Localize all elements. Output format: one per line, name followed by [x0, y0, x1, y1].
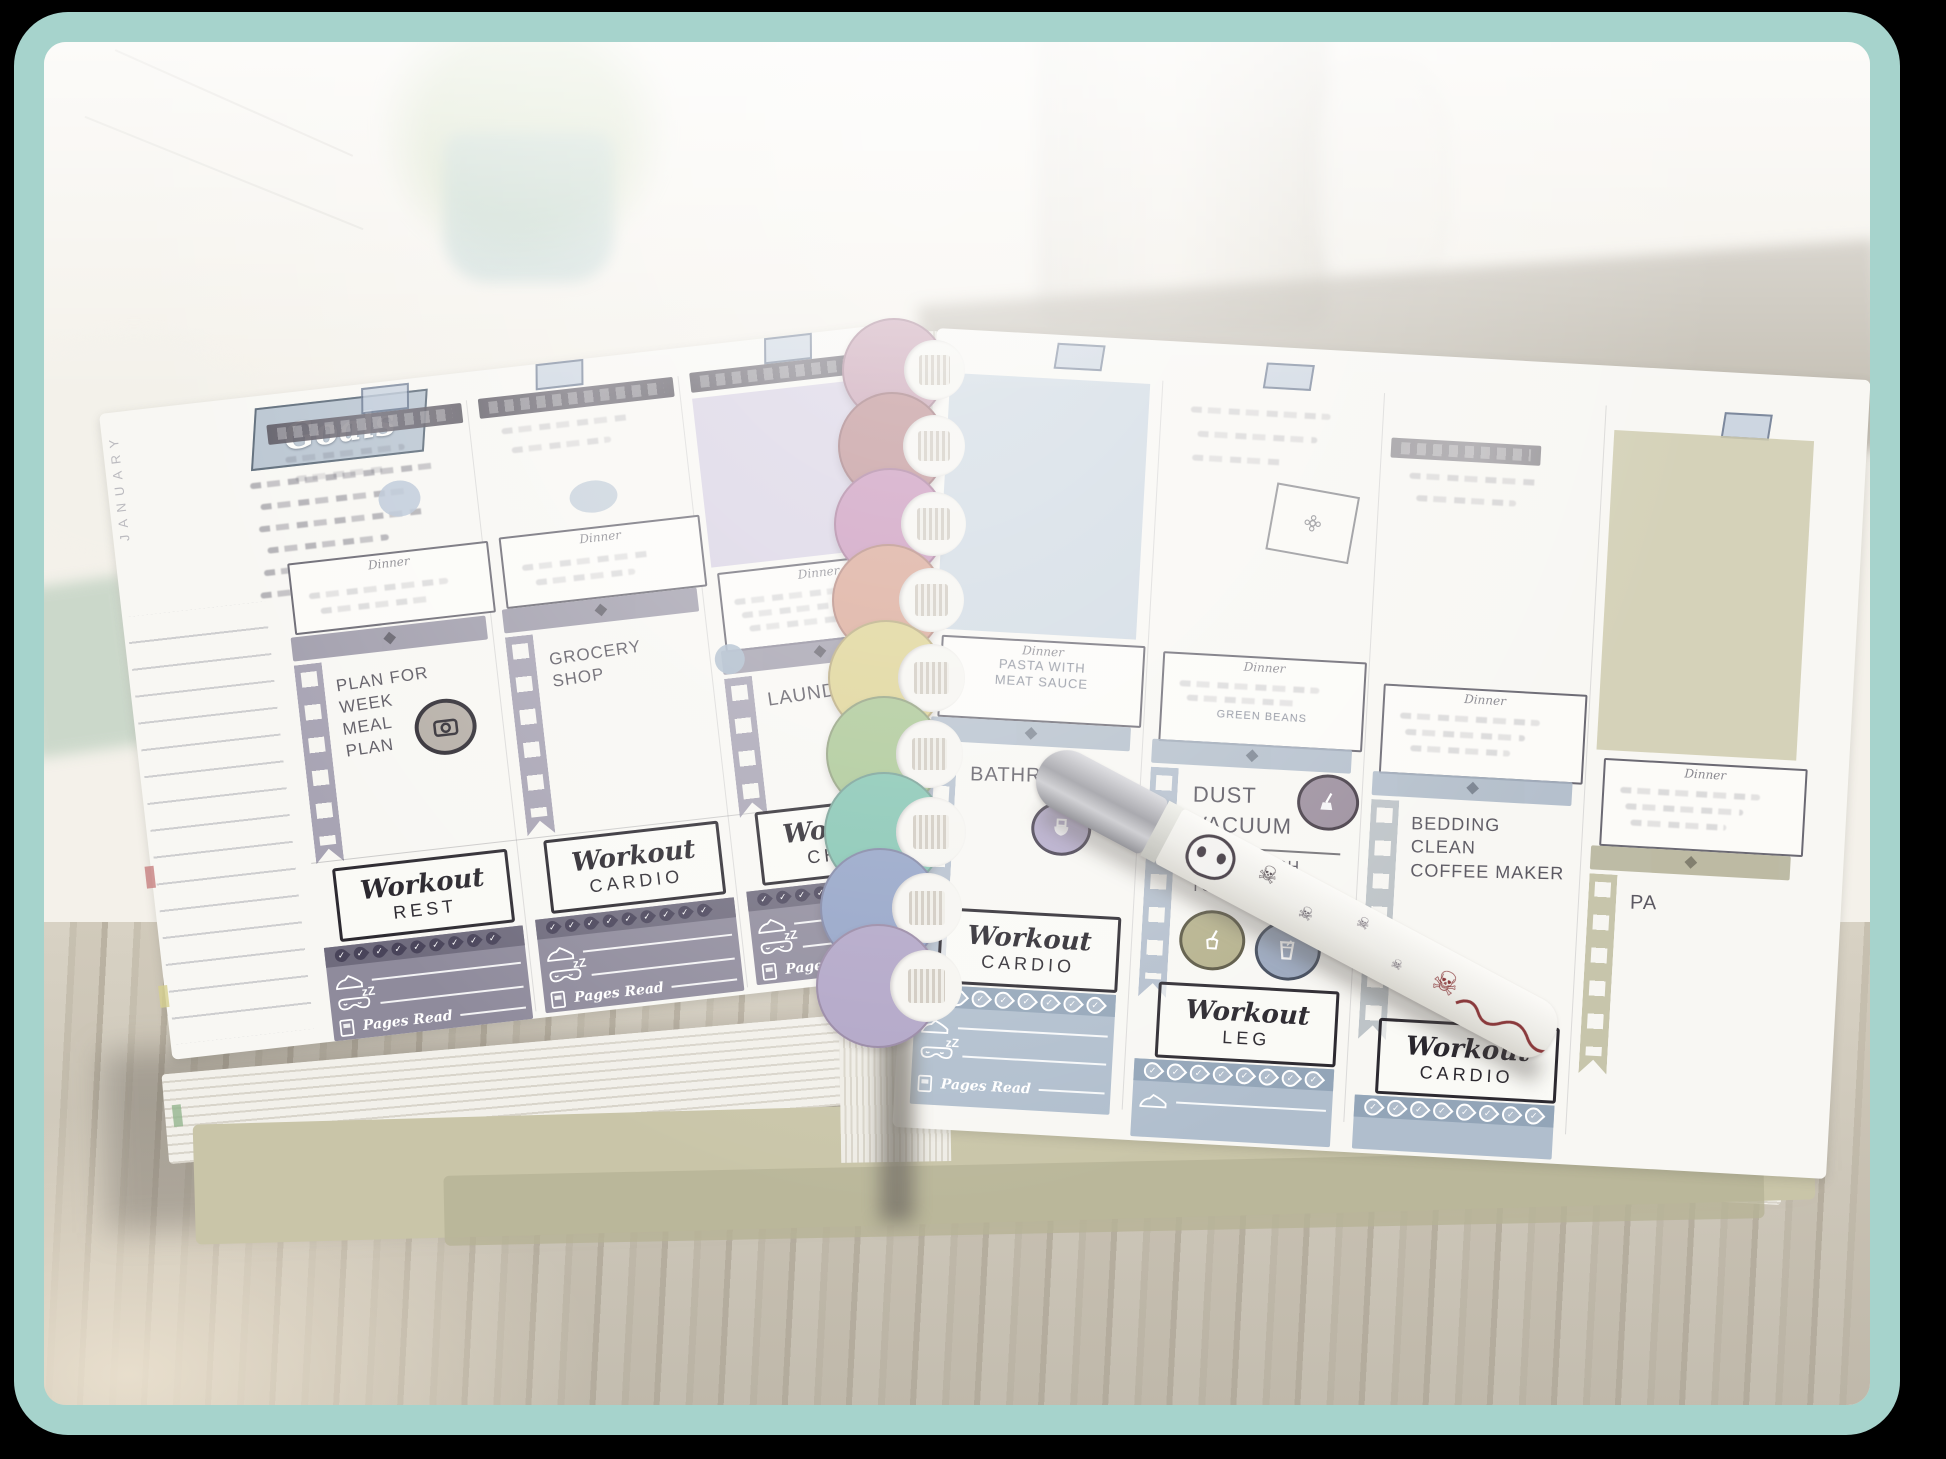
- dinner-label: Dinner: [1391, 688, 1579, 712]
- steps-writing-line: [1176, 1102, 1326, 1112]
- water-drop-icon: ✓: [1498, 1103, 1522, 1127]
- divider-ornament-icon: [1684, 856, 1697, 869]
- dinner-handwriting: [536, 568, 636, 585]
- water-drop-icon: ✓: [676, 903, 694, 921]
- steps-row: [1138, 1088, 1327, 1122]
- dinner-handwriting: [1625, 803, 1743, 816]
- dinner-handwriting: [1400, 712, 1540, 726]
- water-drop-icon: ✓: [1037, 991, 1061, 1015]
- day-header-washi: [1390, 438, 1541, 466]
- book-icon: [338, 1018, 356, 1038]
- sleep-zz-label: zZ: [783, 927, 798, 942]
- sneaker-icon: [1138, 1091, 1169, 1111]
- dinner-handwriting: [1630, 819, 1726, 830]
- vase: [1314, 62, 1444, 282]
- water-drop-icon: ✓: [1301, 1068, 1325, 1092]
- water-drop-icon: ✓: [638, 908, 656, 926]
- water-drop-icon: ✓: [445, 934, 463, 952]
- sleep-zz-label: zZ: [572, 955, 587, 970]
- workout-script-label: Workout: [967, 922, 1093, 955]
- notes-handwriting: [1192, 454, 1282, 465]
- pages-writing-line: [460, 1006, 526, 1015]
- skull-glyph: ☠: [1294, 902, 1317, 927]
- notes-handwriting: [501, 414, 631, 435]
- habit-tracker-sticker: ✓✓✓✓✓✓✓✓: [1130, 1058, 1334, 1147]
- water-drop-icon: ✓: [1060, 992, 1084, 1016]
- dinner-entry-text: Green Beans: [1162, 705, 1362, 730]
- notes-handwriting: [1197, 431, 1317, 444]
- sleep-zz-label: zZ: [945, 1035, 959, 1050]
- blue-washi-block: [936, 373, 1150, 640]
- steps-writing-line: [958, 1027, 1108, 1037]
- workout-type-label: Cardio: [981, 951, 1076, 977]
- broom-icon: [1317, 791, 1340, 814]
- divider-ornament-icon: [814, 645, 827, 658]
- sleep-writing-line: [962, 1056, 1106, 1066]
- water-drop-icon: ✓: [1140, 1059, 1164, 1083]
- date-sticker: [1263, 362, 1315, 390]
- sneaker-icon: [755, 916, 787, 937]
- recipe-sticker: [1265, 482, 1360, 564]
- binding-disc: [816, 924, 940, 1048]
- dinner-box: Dinner: [1379, 683, 1588, 784]
- dinner-label: Dinner: [296, 546, 482, 581]
- dinner-handwriting: [1187, 695, 1297, 707]
- water-drop-icon: ✓: [1083, 993, 1107, 1017]
- water-drop-icon: ✓: [1476, 1101, 1500, 1125]
- water-drop-icon: ✓: [619, 910, 637, 928]
- book-icon: [916, 1074, 933, 1093]
- water-drop-icon: ✓: [1014, 990, 1038, 1014]
- water-drop-icon: ✓: [991, 988, 1015, 1012]
- flower-icon: [1300, 511, 1326, 537]
- water-drop-icon: ✓: [389, 940, 407, 958]
- dinner-handwriting: [320, 596, 430, 614]
- water-drop-icon: ✓: [968, 987, 992, 1011]
- checklist-washi-strip: [724, 676, 768, 818]
- dinner-box: Dinner Green Beans: [1158, 651, 1367, 752]
- habit-tracker-sticker: ✓✓✓✓✓✓✓✓✓ zZ Pages Read: [535, 897, 744, 1013]
- water-drop-icon: ✓: [1255, 1065, 1279, 1089]
- workout-script-label: Workout: [359, 864, 486, 904]
- dinner-box: Dinner Pasta with Meat Sauce: [937, 635, 1145, 728]
- task-handwriting: Plan for week Meal Plan: [335, 653, 496, 763]
- water-drop-icon: ✓: [792, 886, 810, 904]
- right-page: Dinner Pasta with Meat Sauce Bathrooms W…: [892, 328, 1870, 1179]
- water-drop-icon: ✓: [1186, 1061, 1210, 1085]
- water-drop-icon: ✓: [581, 914, 599, 932]
- water-drop-icon: ✓: [1453, 1100, 1477, 1124]
- divider-ornament-icon: [1246, 749, 1259, 762]
- divider-ornament-icon: [1466, 782, 1479, 795]
- water-drop-icon: ✓: [1163, 1060, 1187, 1084]
- water-drop-icon: ✓: [464, 931, 482, 949]
- task-handwriting: Bedding Clean Coffee Maker: [1410, 812, 1581, 886]
- task-handwriting: Grocery Shop: [548, 627, 703, 693]
- sneaker-icon: [333, 972, 365, 993]
- water-drop-icon: ✓: [755, 890, 773, 908]
- habit-tracker-sticker: ✓✓✓✓✓✓✓✓: [1352, 1095, 1555, 1160]
- workout-box: Workout Rest: [332, 849, 515, 942]
- water-drop-icon: ✓: [543, 918, 561, 936]
- sketch-stroke: [85, 116, 364, 230]
- workout-box: Workout Cardio: [543, 821, 726, 914]
- mop-icon: [1200, 928, 1225, 953]
- book-icon: [760, 962, 778, 982]
- photo-frame: JANUARY Goals Dinner Plan: [0, 0, 1946, 1459]
- teal-border-mat: JANUARY Goals Dinner Plan: [14, 12, 1900, 1435]
- workout-type-label: Leg: [1222, 1027, 1271, 1051]
- water-drop-icon: ✓: [773, 888, 791, 906]
- skull-glyph: ☠: [1388, 955, 1406, 975]
- checklist-washi-strip: [1578, 873, 1617, 1074]
- notes-handwriting: [1409, 473, 1539, 486]
- water-drop-icon: ✓: [427, 936, 445, 954]
- dinner-handwriting: [1405, 729, 1525, 742]
- divider-ornament-icon: [1025, 727, 1038, 740]
- water-drop-icon: ✓: [1430, 1099, 1454, 1123]
- water-drop-icon: ✓: [1278, 1066, 1302, 1090]
- skull-glyph: ☠: [1253, 859, 1283, 891]
- notes-handwriting: [1416, 495, 1516, 507]
- goals-handwriting: [267, 534, 389, 554]
- notes-handwriting: [511, 436, 611, 453]
- sketch-stroke: [115, 49, 353, 157]
- date-sticker: [536, 359, 584, 391]
- photo-scene: JANUARY Goals Dinner Plan: [44, 42, 1870, 1405]
- pages-read-label: Pages Read: [940, 1076, 1031, 1097]
- sleep-row: zZ: [918, 1042, 1107, 1076]
- water-drop-icon: ✓: [657, 905, 675, 923]
- water-drop-icon: ✓: [370, 942, 388, 960]
- divider-ornament-icon: [383, 632, 396, 645]
- skull-glyph: ☠: [1353, 912, 1373, 934]
- water-drop-icon: ✓: [1209, 1063, 1233, 1087]
- water-drop-icon: ✓: [408, 938, 426, 956]
- pages-read-row: Pages Read: [916, 1072, 1105, 1104]
- divider-ornament-icon: [595, 604, 608, 617]
- skull-print-large: [1180, 828, 1242, 886]
- water-drop-icon: ✓: [351, 944, 369, 962]
- dinner-label: Dinner: [1170, 656, 1358, 680]
- water-drop-icon: ✓: [694, 901, 712, 919]
- water-drop-icon: ✓: [600, 912, 618, 930]
- date-sticker: [1054, 343, 1106, 371]
- sleep-zz-label: zZ: [361, 983, 376, 998]
- camera-icon: [431, 714, 459, 739]
- dinner-label: Dinner: [507, 520, 693, 555]
- water-drop-icon: ✓: [1407, 1098, 1431, 1122]
- workout-box: Workout Cardio: [936, 907, 1121, 993]
- water-drop-icon: ✓: [562, 916, 580, 934]
- workout-script-label: Workout: [1185, 996, 1311, 1029]
- dinner-handwriting: [1620, 787, 1760, 801]
- water-drop-icon: ✓: [483, 929, 501, 947]
- task-handwriting: Pa: [1630, 890, 1751, 919]
- water-drop-icon: ✓: [1521, 1104, 1545, 1128]
- blue-oval-sticker: [568, 478, 619, 515]
- water-drop-icon: ✓: [1361, 1095, 1385, 1119]
- notes-handwriting: [1191, 406, 1331, 420]
- workout-box: Workout Leg: [1155, 981, 1340, 1067]
- water-drop-icon: ✓: [1232, 1064, 1256, 1088]
- pages-writing-line: [1039, 1089, 1105, 1095]
- water-drop-icon: ✓: [1384, 1096, 1408, 1120]
- dinner-handwriting: [1410, 745, 1510, 757]
- sneaker-icon: [544, 944, 576, 965]
- dinner-handwriting: [1179, 680, 1319, 694]
- water-drop-icon: ✓: [332, 946, 350, 964]
- plant-pot: [444, 132, 614, 282]
- book-icon: [549, 990, 567, 1010]
- dinner-box: Dinner: [1599, 758, 1808, 857]
- pages-writing-line: [671, 978, 737, 987]
- olive-washi-block: [1597, 430, 1815, 761]
- dinner-label: Dinner: [1611, 762, 1799, 786]
